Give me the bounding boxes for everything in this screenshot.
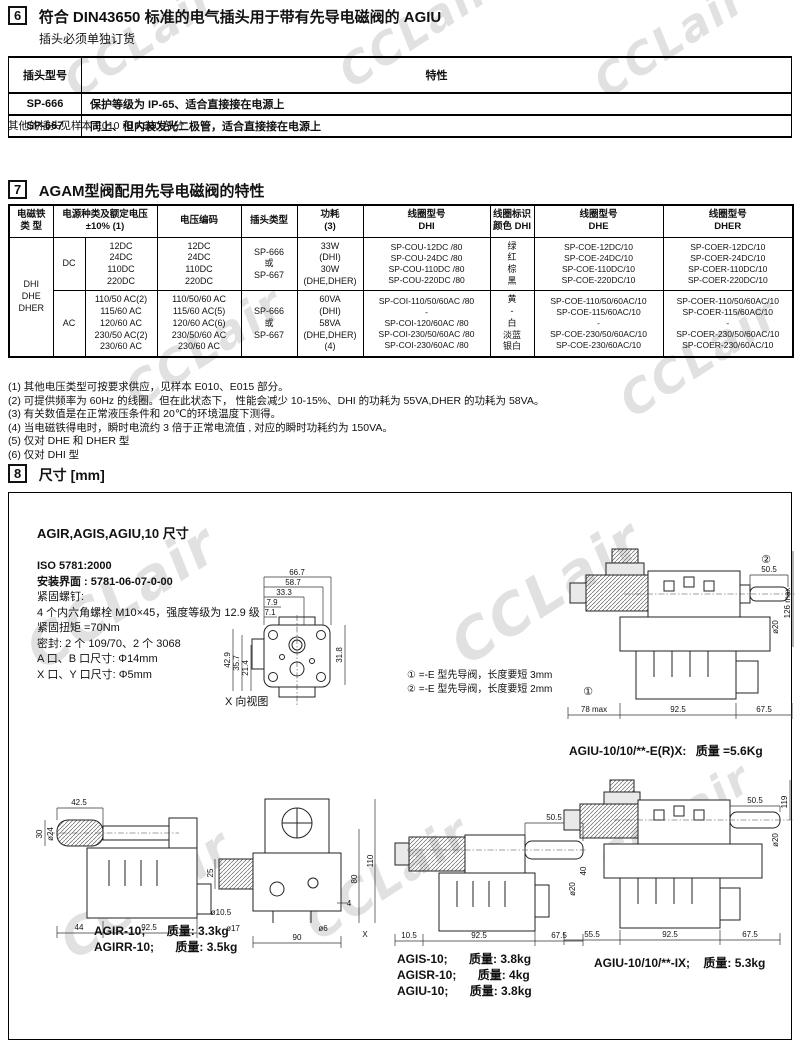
plug-model: SP-666 bbox=[9, 93, 82, 115]
marker-2: ② bbox=[761, 554, 771, 566]
dim-label: 4 bbox=[347, 899, 352, 908]
cell-dc-colors: 绿 红 棕 黑 bbox=[490, 237, 534, 291]
pilot-valve-characteristics-table: 电磁铁 类 型 电源种类及额定电压 ±10% (1) 电压编码 插头类型 功耗 … bbox=[8, 204, 794, 358]
dim-label: 92.5 bbox=[670, 705, 686, 714]
footnote-1: (1) 其他电压类型可按要求供应，见样本 E010、E015 部分。 bbox=[8, 381, 544, 395]
col-voltage-code: 电压编码 bbox=[157, 205, 241, 237]
mass-value: 质量: 3.8kg bbox=[469, 952, 531, 966]
footnotes: (1) 其他电压类型可按要求供应，见样本 E010、E015 部分。 (2) 可… bbox=[8, 381, 544, 462]
dim-label: 78 max bbox=[581, 705, 607, 714]
cell-ac-colors: 黄 - 白 淡蓝 银白 bbox=[490, 291, 534, 357]
cell-dc: DC bbox=[53, 237, 85, 291]
cell-ac: AC bbox=[53, 291, 85, 357]
col-coil-dhi: 线圈型号 DHI bbox=[363, 205, 490, 237]
section6-header: 6 符合 DIN43650 标准的电气插头用于带有先导电磁阀的 AGIU 插头必… bbox=[8, 6, 441, 47]
footnote-5: (5) 仅对 DHE 和 DHER 型 bbox=[8, 435, 544, 449]
section8-number: 8 bbox=[8, 464, 27, 483]
dimensions-box: AGIR,AGIS,AGIU,10 尺寸 ISO 5781:2000 安装界面 … bbox=[8, 492, 792, 1040]
model-code: AGIS-10; bbox=[397, 952, 448, 966]
dim-label: ø20 bbox=[771, 620, 780, 634]
col-supply-voltage: 电源种类及额定电压 ±10% (1) bbox=[53, 205, 157, 237]
mass-value: 质量: 3.8kg bbox=[470, 984, 532, 998]
agis-front-view-drawing: 110 80 25 ø10.5 ø17 ø6 X 4 90 bbox=[207, 791, 392, 951]
dim-label: 7.1 bbox=[264, 608, 276, 617]
dim-label: X bbox=[362, 930, 368, 939]
model-code: AGISR-10; bbox=[397, 968, 456, 982]
dim-label: 67.5 bbox=[756, 705, 772, 714]
cell-ac-codes: 110/50/60 AC 115/60 AC(5) 120/60 AC(6) 2… bbox=[157, 291, 241, 357]
dim-label: 50.5 bbox=[747, 796, 763, 805]
cell-dc-coil-dhi: SP-COU-12DC /80 SP-COU-24DC /80 SP-COU-1… bbox=[363, 237, 490, 291]
table-row-ac: AC 110/50 AC(2) 115/60 AC 120/60 AC 230/… bbox=[9, 291, 793, 357]
drawing-label-erx: AGIU-10/10/**-E(R)X: 质量 =5.6Kg bbox=[569, 743, 763, 759]
dim-label: ø20 bbox=[771, 833, 780, 847]
note-2: ② =-E 型先导阀，长度要短 2mm bbox=[407, 683, 552, 697]
model-code: AGIR-10; bbox=[94, 924, 145, 938]
dim-label: 30 bbox=[35, 829, 44, 838]
table-row: SP-666 保护等级为 IP-65、适合直接接在电源上 bbox=[9, 93, 792, 115]
dim-label: 44 bbox=[75, 923, 84, 932]
dim-label: 42.5 bbox=[71, 798, 87, 807]
cell-dc-power: 33W (DHI) 30W (DHE,DHER) bbox=[297, 237, 363, 291]
dim-label: 92.5 bbox=[471, 931, 487, 940]
dim-label: 21.4 bbox=[241, 660, 250, 676]
plug-table-note: 其他的插头见样本 E010 和 K500 部分 bbox=[8, 118, 184, 133]
plug-table-header-model: 插头型号 bbox=[9, 57, 82, 93]
col-plug-type: 插头类型 bbox=[241, 205, 297, 237]
dim-label: 67.5 bbox=[742, 930, 758, 939]
dim-label: ø17 bbox=[226, 924, 240, 933]
mass-value: 质量 =5.6Kg bbox=[696, 744, 763, 758]
col-coil-color-dhi: 线圈标识 颜色 DHI bbox=[490, 205, 534, 237]
dim-label: 126 max bbox=[783, 588, 792, 619]
dim-label: ø24 bbox=[46, 827, 55, 841]
dim-label: 119 bbox=[780, 795, 789, 808]
plug-feature: 保护等级为 IP-65、适合直接接在电源上 bbox=[82, 93, 792, 115]
table-header-row: 电磁铁 类 型 电源种类及额定电压 ±10% (1) 电压编码 插头类型 功耗 … bbox=[9, 205, 793, 237]
footnote-4: (4) 当电磁铁得电时，瞬时电流约 3 倍于正常电流值 , 对应的瞬时功耗约为 … bbox=[8, 422, 544, 436]
agiu-ix-drawing: 50.5 119 ø20 55.5 92.5 67.5 bbox=[554, 778, 799, 953]
dim-label: 7.9 bbox=[266, 598, 278, 607]
model-code: AGIU-10/10/**-E(R)X: bbox=[569, 744, 686, 758]
plug-feature: 同上、但内装发光二极管，适合直接接在电源上 bbox=[82, 115, 792, 137]
dim-label: 110 bbox=[366, 854, 375, 867]
view-x-label: X 向视图 bbox=[225, 693, 268, 709]
marker-1: ① bbox=[583, 686, 593, 698]
section6-subtitle: 插头必须单独订货 bbox=[39, 30, 441, 47]
dimensions-box-title: AGIR,AGIS,AGIU,10 尺寸 bbox=[37, 523, 189, 542]
section7-header: 7 AGAM型阀配用先导电磁阀的特性 bbox=[8, 180, 265, 201]
cell-ac-power: 60VA (DHI) 58VA (DHE,DHER) (4) bbox=[297, 291, 363, 357]
col-solenoid-type: 电磁铁 类 型 bbox=[9, 205, 53, 237]
table-row-dc: DHI DHE DHER DC 12DC 24DC 110DC 220DC 12… bbox=[9, 237, 793, 291]
model-code: AGIU-10; bbox=[397, 984, 448, 998]
cell-dc-codes: 12DC 24DC 110DC 220DC bbox=[157, 237, 241, 291]
model-code: AGIRR-10; bbox=[94, 940, 154, 954]
note-1: ① =-E 型先导阀，长度要短 3mm bbox=[407, 669, 552, 683]
drawing-label-ix: AGIU-10/10/**-IX; 质量: 5.3kg bbox=[594, 955, 765, 971]
col-power: 功耗 (3) bbox=[297, 205, 363, 237]
mass-value: 质量: 5.3kg bbox=[703, 956, 765, 970]
footnote-2: (2) 可提供频率为 60Hz 的线圈。但在此状态下， 性能会减少 10-15%… bbox=[8, 395, 544, 409]
dim-label: 80 bbox=[350, 874, 359, 883]
pilot-notes: ① =-E 型先导阀，长度要短 3mm ② =-E 型先导阀，长度要短 2mm bbox=[407, 669, 552, 697]
dim-label: 58.7 bbox=[285, 578, 301, 587]
section7-title: AGAM型阀配用先导电磁阀的特性 bbox=[39, 183, 265, 200]
dim-label: 92.5 bbox=[662, 930, 678, 939]
dim-label: ø6 bbox=[318, 924, 328, 933]
cell-dc-voltages: 12DC 24DC 110DC 220DC bbox=[85, 237, 157, 291]
col-coil-dher: 线圈型号 DHER bbox=[663, 205, 793, 237]
dim-label: 42.9 bbox=[223, 652, 232, 668]
plug-table-header-feature: 特性 bbox=[82, 57, 792, 93]
label-row: AGISR-10; 质量: 4kg bbox=[397, 967, 532, 983]
label-row: AGIU-10; 质量: 3.8kg bbox=[397, 983, 532, 999]
model-code: AGIU-10/10/**-IX; bbox=[594, 956, 690, 970]
section7-number: 7 bbox=[8, 180, 27, 199]
cell-dc-plug: SP-666 或 SP-667 bbox=[241, 237, 297, 291]
dim-label: 66.7 bbox=[289, 568, 305, 577]
agiu-erx-drawing: 50.5 126 max ø20 78 max 92.5 67.5 ② ① bbox=[564, 545, 799, 740]
dim-label: 31.8 bbox=[335, 647, 344, 663]
dim-label: 25 bbox=[206, 868, 215, 877]
col-coil-dhe: 线圈型号 DHE bbox=[534, 205, 663, 237]
mass-value: 质量: 4kg bbox=[478, 968, 530, 982]
footnote-3: (3) 有关数值是在正常液压条件和 20℃的环境温度下测得。 bbox=[8, 408, 544, 422]
dim-label: 90 bbox=[293, 933, 302, 942]
label-row: AGIS-10; 质量: 3.8kg bbox=[397, 951, 532, 967]
cell-dc-coil-dhe: SP-COE-12DC/10 SP-COE-24DC/10 SP-COE-110… bbox=[534, 237, 663, 291]
cell-ac-plug: SP-666 或 SP-667 bbox=[241, 291, 297, 357]
dim-label: ø10.5 bbox=[211, 908, 232, 917]
dim-label: 33.3 bbox=[276, 588, 292, 597]
footnote-6: (6) 仅对 DHI 型 bbox=[8, 449, 544, 463]
section6-title: 符合 DIN43650 标准的电气插头用于带有先导电磁阀的 AGIU bbox=[39, 9, 442, 26]
dim-label: 55.5 bbox=[584, 930, 600, 939]
drawing-label-agis: AGIS-10; 质量: 3.8kg AGISR-10; 质量: 4kg AGI… bbox=[397, 951, 532, 999]
cell-ac-coil-dhe: SP-COE-110/50/60AC/10 SP-COE-115/60AC/10… bbox=[534, 291, 663, 357]
cell-ac-coil-dhi: SP-COI-110/50/60AC /80 - SP-COI-120/60AC… bbox=[363, 291, 490, 357]
catalog-page: CCLair CCLair CCLair CCLair CCLair CCLai… bbox=[0, 0, 800, 1045]
cell-solenoid-types: DHI DHE DHER bbox=[9, 237, 53, 357]
dim-label: 35.7 bbox=[232, 655, 241, 671]
cell-dc-coil-dher: SP-COER-12DC/10 SP-COER-24DC/10 SP-COER-… bbox=[663, 237, 793, 291]
cell-ac-coil-dher: SP-COER-110/50/60AC/10 SP-COER-115/60AC/… bbox=[663, 291, 793, 357]
cell-ac-voltages: 110/50 AC(2) 115/60 AC 120/60 AC 230/50 … bbox=[85, 291, 157, 357]
section8-title: 尺寸 [mm] bbox=[39, 467, 105, 483]
dim-label: 10.5 bbox=[401, 931, 417, 940]
section6-number: 6 bbox=[8, 6, 27, 25]
section8-header: 8 尺寸 [mm] bbox=[8, 464, 105, 485]
dim-label: 50.5 bbox=[761, 565, 777, 574]
